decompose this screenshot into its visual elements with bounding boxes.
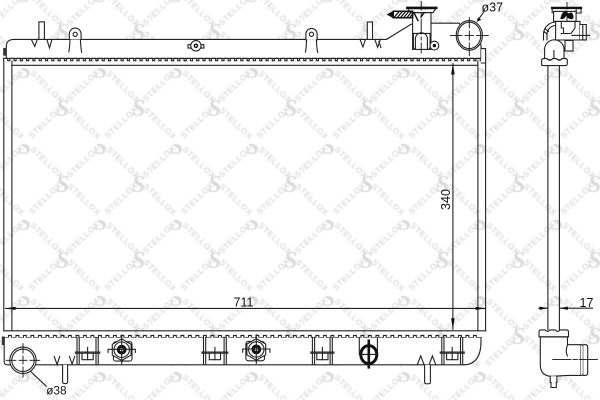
svg-text:17: 17 <box>580 296 594 310</box>
svg-text:340: 340 <box>439 189 453 210</box>
svg-text:ø37: ø37 <box>482 1 504 15</box>
svg-text:711: 711 <box>234 295 254 309</box>
svg-text:ø38: ø38 <box>46 384 67 398</box>
